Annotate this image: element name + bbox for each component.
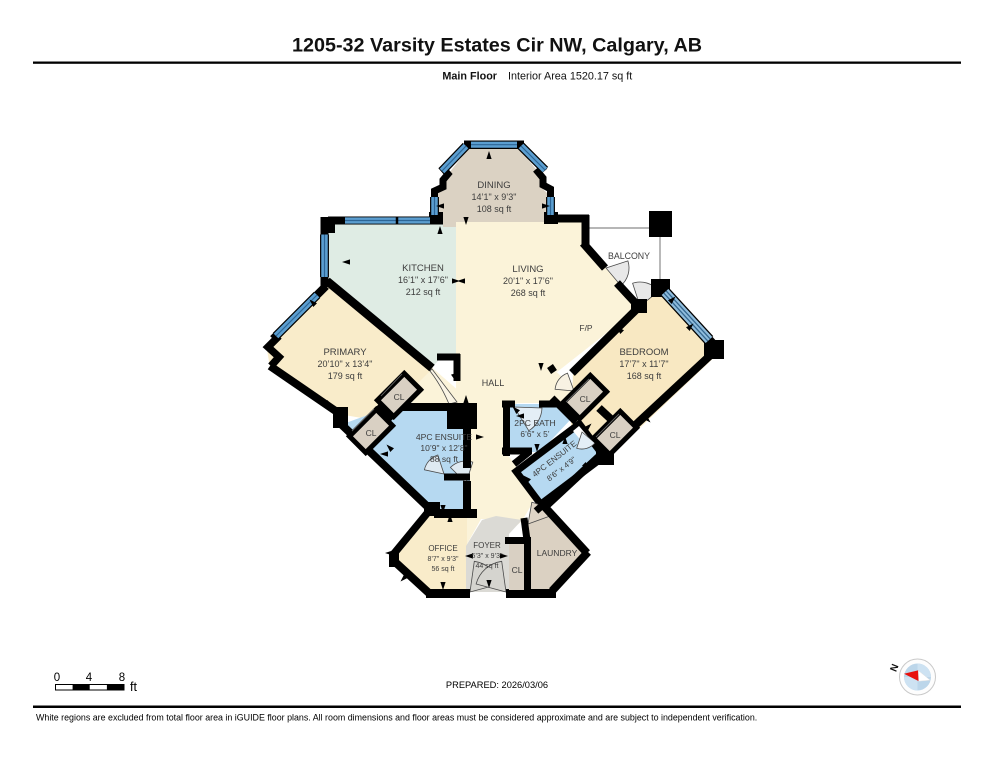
svg-text:17’7" x 11’7": 17’7" x 11’7": [619, 359, 668, 369]
svg-text:1205-32 Varsity Estates Cir NW: 1205-32 Varsity Estates Cir NW, Calgary,…: [292, 34, 702, 56]
svg-text:4: 4: [86, 672, 93, 684]
svg-text:8’7" x 9’3": 8’7" x 9’3": [427, 556, 459, 563]
svg-text:20’1" x 17’6": 20’1" x 17’6": [503, 276, 553, 286]
svg-text:OFFICE: OFFICE: [428, 544, 457, 553]
svg-text:44 sq ft: 44 sq ft: [476, 563, 499, 570]
svg-text:ft: ft: [130, 680, 137, 694]
svg-text:0: 0: [54, 672, 60, 684]
svg-text:CL: CL: [610, 430, 621, 440]
svg-text:FOYER: FOYER: [473, 541, 501, 550]
svg-text:108 sq ft: 108 sq ft: [477, 204, 512, 214]
svg-text:DINING: DINING: [477, 180, 510, 191]
svg-text:CL: CL: [580, 394, 591, 404]
svg-text:LAUNDRY: LAUNDRY: [537, 548, 578, 558]
svg-text:CL: CL: [366, 428, 377, 438]
svg-text:F/P: F/P: [579, 323, 593, 333]
svg-text:White regions are excluded fro: White regions are excluded from total fl…: [36, 713, 757, 723]
svg-text:212 sq ft: 212 sq ft: [406, 287, 441, 297]
svg-text:2PC BATH: 2PC BATH: [514, 418, 555, 428]
svg-text:5’3" x 9’3": 5’3" x 9’3": [471, 553, 503, 560]
svg-text:16’1" x 17’6": 16’1" x 17’6": [398, 275, 448, 285]
svg-text:8: 8: [119, 672, 125, 684]
svg-text:88 sq ft: 88 sq ft: [430, 454, 459, 464]
svg-text:Main Floor: Main Floor: [442, 71, 497, 83]
svg-text:CL: CL: [512, 565, 523, 575]
svg-text:6’6" x 5’: 6’6" x 5’: [520, 429, 549, 439]
svg-text:HALL: HALL: [482, 378, 505, 388]
svg-text:168 sq ft: 168 sq ft: [627, 371, 662, 381]
svg-text:PRIMARY: PRIMARY: [323, 347, 367, 358]
svg-text:BEDROOM: BEDROOM: [619, 347, 668, 358]
svg-text:PREPARED: 2026/03/06: PREPARED: 2026/03/06: [446, 680, 548, 690]
svg-text:179 sq ft: 179 sq ft: [328, 371, 363, 381]
svg-text:20’10" x 13’4": 20’10" x 13’4": [318, 359, 373, 369]
svg-text:268 sq ft: 268 sq ft: [511, 288, 546, 298]
svg-text:14’1" x 9’3": 14’1" x 9’3": [472, 192, 517, 202]
svg-text:BALCONY: BALCONY: [608, 251, 650, 261]
svg-text:10’9" x 12’8": 10’9" x 12’8": [420, 443, 467, 453]
svg-text:CL: CL: [394, 392, 405, 402]
svg-text:4PC ENSUITE: 4PC ENSUITE: [416, 432, 473, 442]
svg-text:KITCHEN: KITCHEN: [402, 263, 444, 274]
svg-text:Interior Area 1520.17 sq ft: Interior Area 1520.17 sq ft: [508, 71, 632, 83]
svg-text:LIVING: LIVING: [512, 264, 543, 275]
svg-text:56 sq ft: 56 sq ft: [432, 566, 455, 573]
